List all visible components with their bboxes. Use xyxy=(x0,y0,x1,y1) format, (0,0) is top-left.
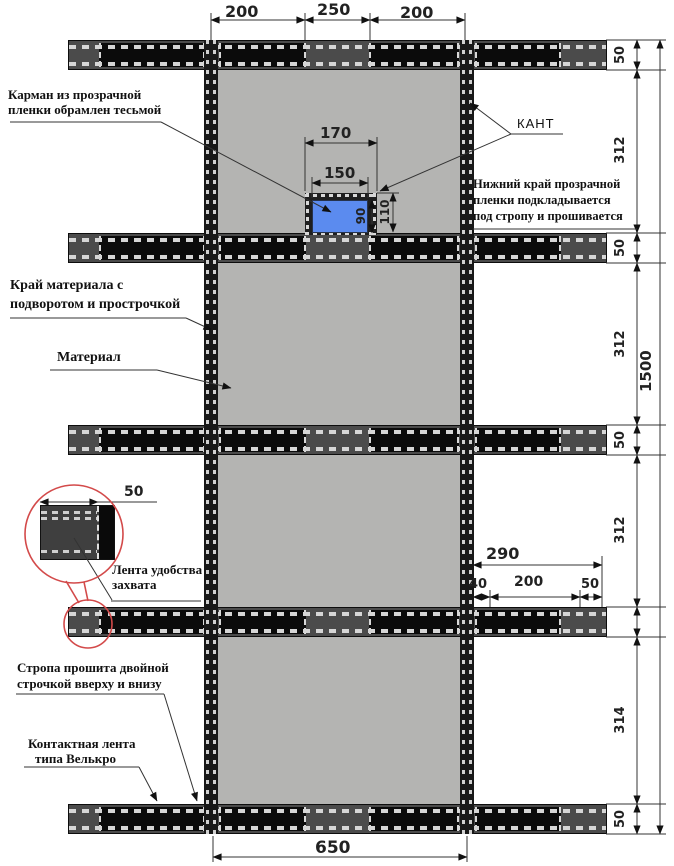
dim-top-right: 200 xyxy=(400,3,433,22)
dim-material-width: 650 xyxy=(315,838,351,858)
label-film-line1: Нижний край прозрачной xyxy=(473,176,623,192)
dim-section-4: 314 xyxy=(613,700,629,740)
dim-grip-margin: 50 xyxy=(581,577,599,592)
technical-drawing: Карман из прозрачной пленки обрамлен тес… xyxy=(0,0,674,866)
label-velcro: Контактная лента типа Велькро xyxy=(28,736,136,766)
label-film-line2: пленки подкладывается xyxy=(473,192,623,208)
dim-pocket-height: 110 xyxy=(377,192,393,232)
webbing-strap xyxy=(68,233,607,263)
stitch-rows xyxy=(69,805,606,833)
dim-strap-width-5: 50 xyxy=(613,799,629,839)
grip-tape-segment xyxy=(41,506,99,559)
webbing-strap xyxy=(68,804,607,834)
dim-grip-length: 200 xyxy=(514,574,543,590)
dim-strap-width-3: 50 xyxy=(613,420,629,460)
webbing-segment xyxy=(99,506,114,559)
dim-pocket-outer-width: 170 xyxy=(320,124,351,142)
dim-section-2: 312 xyxy=(613,324,629,364)
label-sewn-line1: Стропа прошита двойной xyxy=(17,660,169,676)
label-strap-stitched: Стропа прошита двойной строчкой вверху и… xyxy=(17,660,169,692)
stitch-rows xyxy=(69,426,606,454)
label-grip-line2: захвата xyxy=(112,577,202,592)
dim-section-1: 312 xyxy=(613,130,629,170)
dim-detail-width: 50 xyxy=(124,484,143,500)
dim-grip-offset: 40 xyxy=(469,577,487,592)
label-velcro-line1: Контактная лента xyxy=(28,736,136,751)
dim-grip-total: 290 xyxy=(486,544,519,563)
label-material: Материал xyxy=(57,350,121,365)
webbing-strap xyxy=(68,40,607,70)
dim-strap-width-2: 50 xyxy=(613,228,629,268)
dim-top-left: 200 xyxy=(225,2,258,21)
label-film-line3: под стропу и прошивается xyxy=(473,208,623,224)
label-pocket-film-line2: пленки обрамлен тесьмой xyxy=(8,102,161,117)
label-velcro-line2: типа Велькро xyxy=(35,751,136,766)
stitch-rows xyxy=(69,608,606,636)
dim-section-3: 312 xyxy=(613,510,629,550)
label-pocket-film: Карман из прозрачной пленки обрамлен тес… xyxy=(8,87,161,117)
label-edge-line2: подворотом и прострочкой xyxy=(10,295,180,314)
dim-total-height: 1500 xyxy=(638,352,654,392)
webbing-strap xyxy=(68,425,607,455)
edge-binding-left xyxy=(204,40,218,834)
label-kant: КАНТ xyxy=(517,116,555,131)
label-film-bottom-edge: Нижний край прозрачной пленки подкладыва… xyxy=(473,176,623,224)
dim-pocket-inner-width: 150 xyxy=(324,164,355,182)
edge-binding-right xyxy=(460,40,474,834)
grip-tape-detail xyxy=(40,505,115,560)
dim-top-center: 250 xyxy=(317,0,350,19)
dim-pocket-inner-height: 90 xyxy=(353,196,369,236)
stitch-rows xyxy=(69,234,606,262)
webbing-strap xyxy=(68,607,607,637)
label-grip-line1: Лента удобства xyxy=(112,562,202,577)
label-material-edge: Край материала с подворотом и прострочко… xyxy=(10,276,180,314)
label-edge-line1: Край материала с xyxy=(10,276,180,295)
label-sewn-line2: строчкой вверху и внизу xyxy=(17,676,169,692)
dim-strap-width-1: 50 xyxy=(613,35,629,75)
label-pocket-film-line1: Карман из прозрачной xyxy=(8,87,161,102)
stitch-rows xyxy=(69,41,606,69)
label-grip-tape: Лента удобства захвата xyxy=(112,562,202,592)
